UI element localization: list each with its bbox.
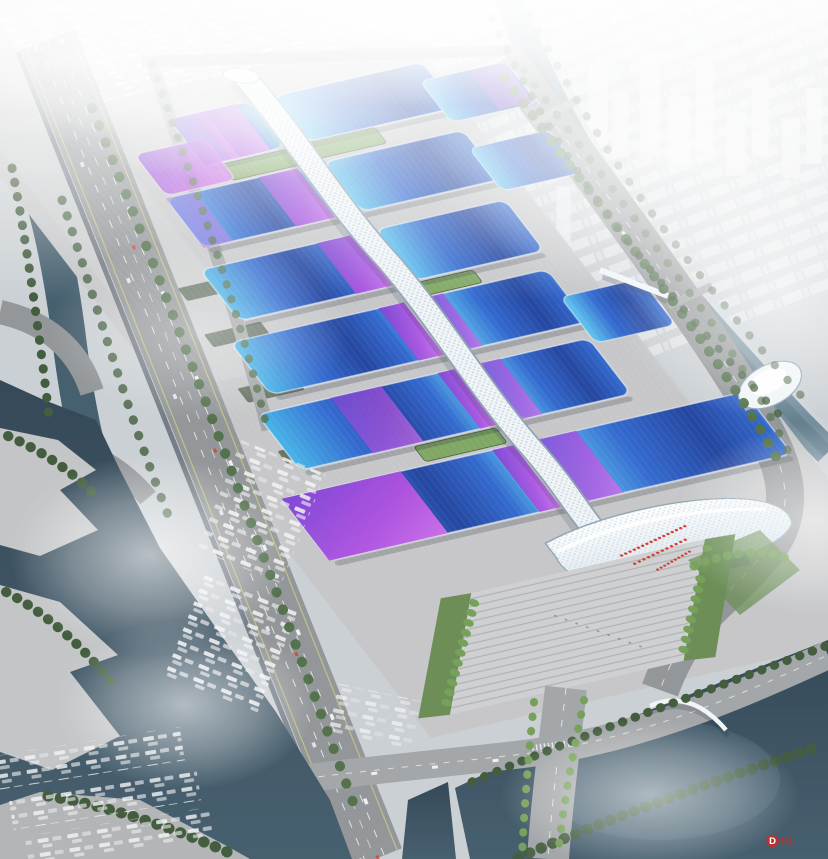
watermark-letter: D xyxy=(769,836,776,847)
fog-overlay xyxy=(0,0,828,859)
watermark-text: IM xyxy=(781,836,793,847)
aerial-rendering: D IM xyxy=(0,0,828,859)
rendering-canvas: D IM xyxy=(0,0,828,859)
